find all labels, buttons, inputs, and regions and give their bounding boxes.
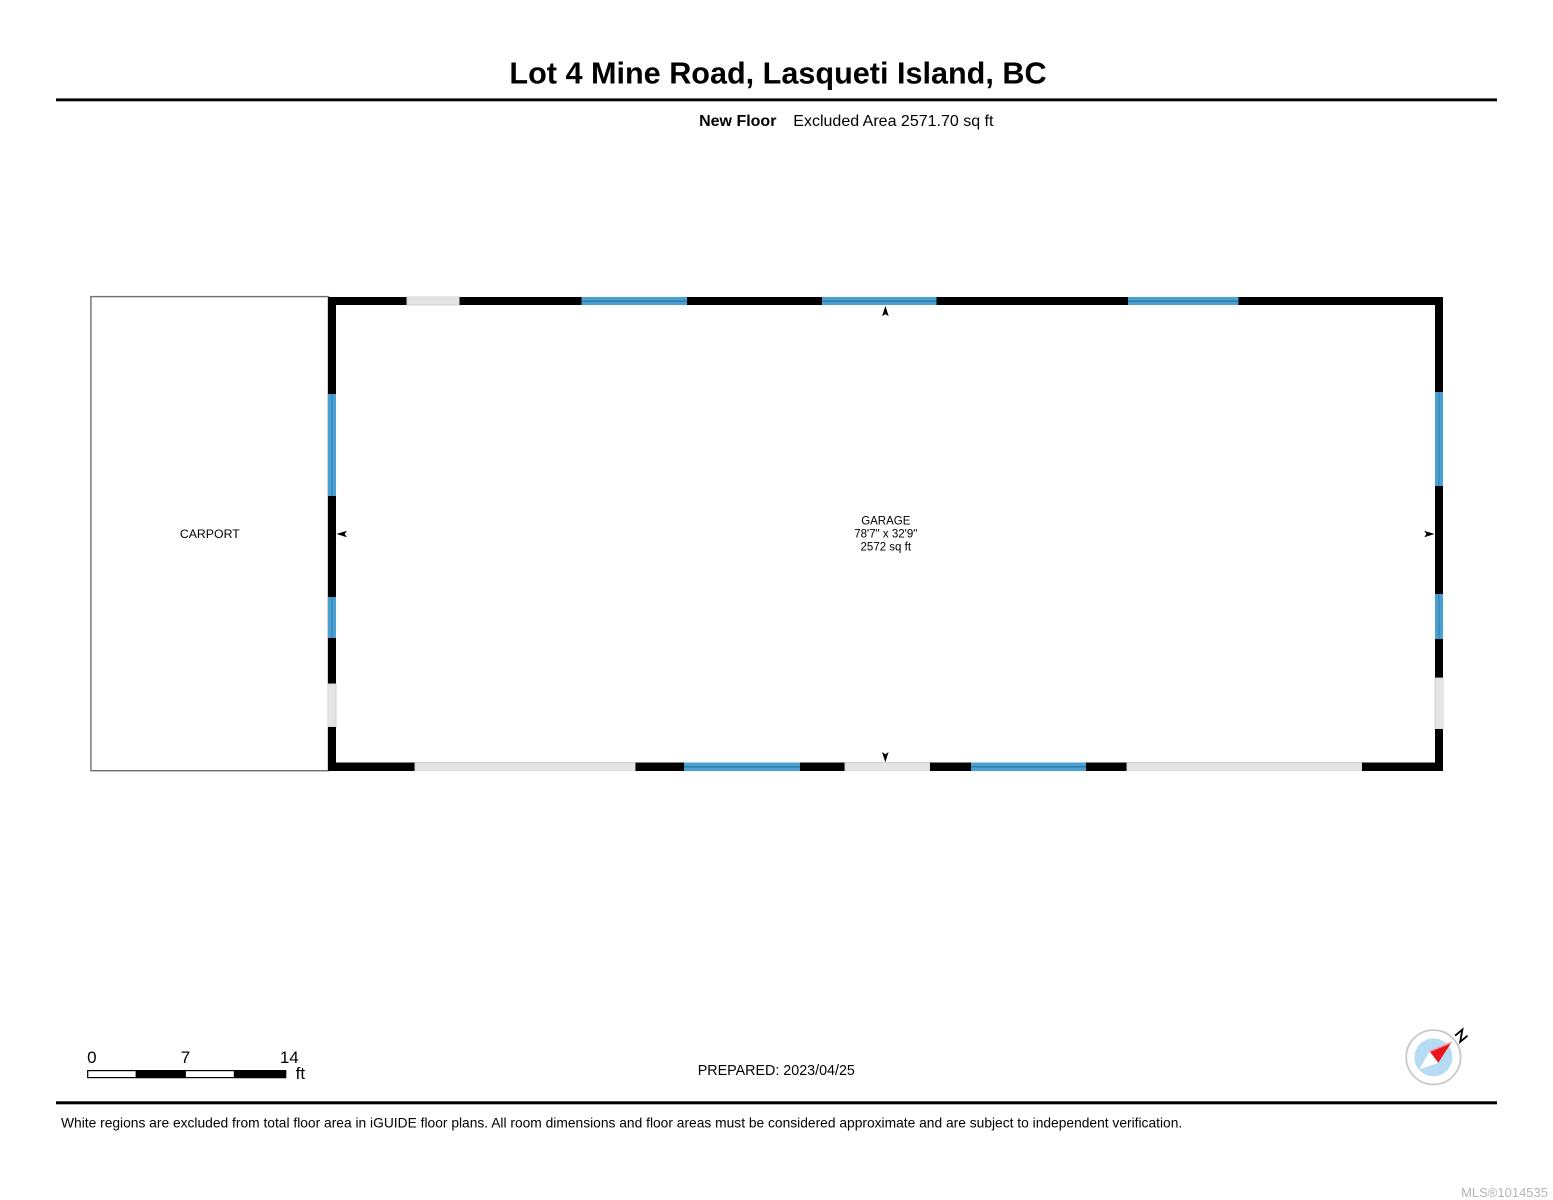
svg-text:PREPARED: 2023/04/25: PREPARED: 2023/04/25 [698, 1063, 855, 1079]
svg-text:MLS®1014535: MLS®1014535 [1461, 1185, 1548, 1200]
svg-text:New Floor: New Floor [699, 113, 776, 130]
svg-text:2572 sq ft: 2572 sq ft [861, 542, 912, 554]
svg-text:0: 0 [87, 1048, 96, 1067]
svg-text:Lot 4 Mine Road, Lasqueti Isla: Lot 4 Mine Road, Lasqueti Island, BC [509, 56, 1046, 90]
svg-text:Excluded Area 2571.70 sq ft: Excluded Area 2571.70 sq ft [793, 113, 994, 130]
svg-text:GARAGE: GARAGE [861, 515, 911, 527]
svg-text:7: 7 [181, 1048, 190, 1067]
svg-text:White regions are excluded fro: White regions are excluded from total fl… [61, 1115, 1182, 1130]
svg-text:78'7" x 32'9": 78'7" x 32'9" [854, 529, 917, 541]
svg-text:CARPORT: CARPORT [180, 527, 240, 541]
svg-text:ft: ft [296, 1064, 306, 1083]
